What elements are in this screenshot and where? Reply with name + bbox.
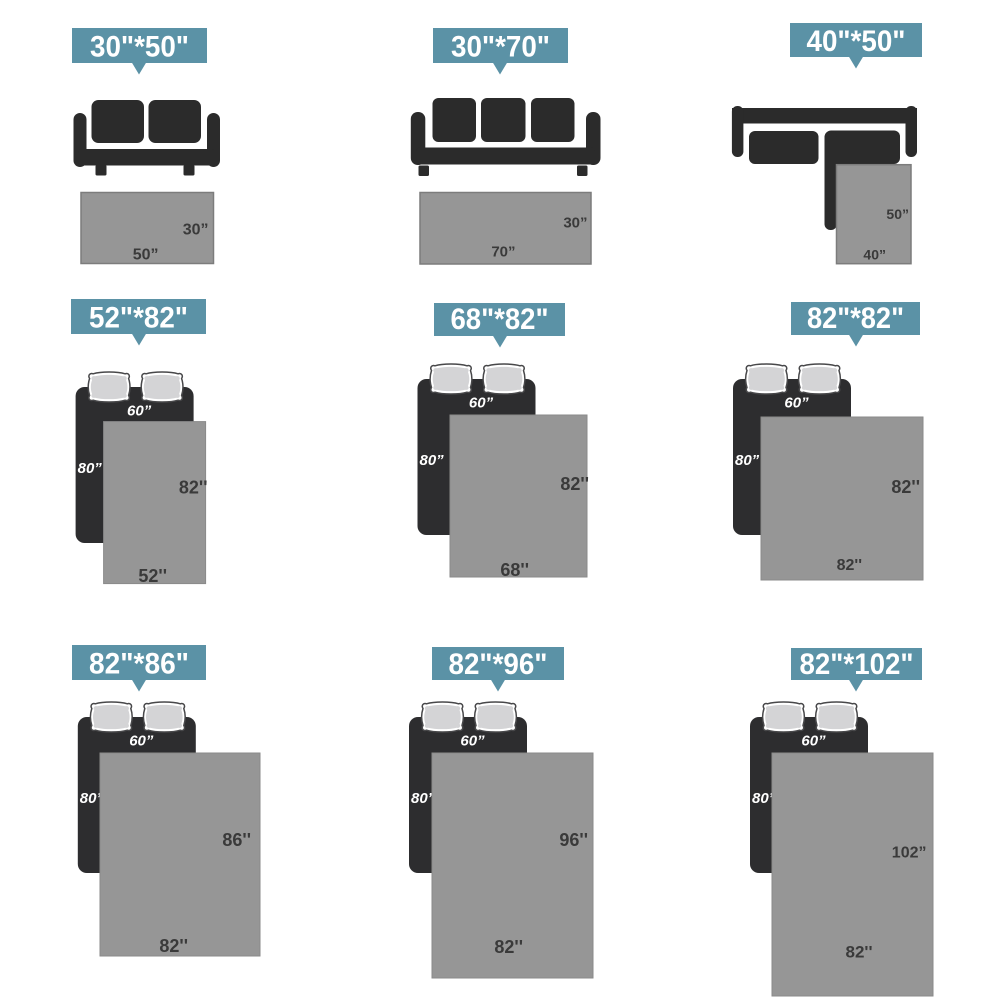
svg-text:40"*50": 40"*50" (807, 25, 906, 58)
svg-text:40”: 40” (863, 247, 886, 263)
svg-text:30”: 30” (183, 222, 209, 239)
svg-text:52'': 52'' (138, 566, 167, 586)
svg-text:82'': 82'' (846, 943, 873, 962)
svg-text:82'': 82'' (891, 477, 920, 497)
svg-text:52"*82": 52"*82" (89, 302, 188, 335)
svg-text:82'': 82'' (159, 936, 188, 956)
svg-text:68'': 68'' (500, 560, 529, 580)
svg-text:82"*82": 82"*82" (807, 302, 904, 335)
svg-text:50”: 50” (886, 206, 909, 222)
svg-text:96'': 96'' (559, 830, 588, 850)
svg-text:68"*82": 68"*82" (451, 303, 549, 336)
svg-text:86'': 86'' (222, 830, 251, 850)
svg-text:82'': 82'' (179, 478, 208, 498)
svg-text:82"*102": 82"*102" (800, 648, 914, 681)
svg-text:82'': 82'' (560, 474, 589, 494)
svg-text:82'': 82'' (837, 557, 862, 574)
svg-text:82"*86": 82"*86" (89, 648, 189, 681)
svg-text:30”: 30” (563, 215, 587, 232)
svg-text:70”: 70” (491, 244, 515, 261)
svg-text:50”: 50” (133, 247, 159, 264)
svg-text:82'': 82'' (494, 937, 523, 957)
svg-text:82"*96": 82"*96" (449, 648, 548, 681)
svg-text:102”: 102” (892, 845, 927, 862)
svg-text:30"*50": 30"*50" (90, 31, 189, 64)
svg-text:30"*70": 30"*70" (451, 31, 550, 64)
